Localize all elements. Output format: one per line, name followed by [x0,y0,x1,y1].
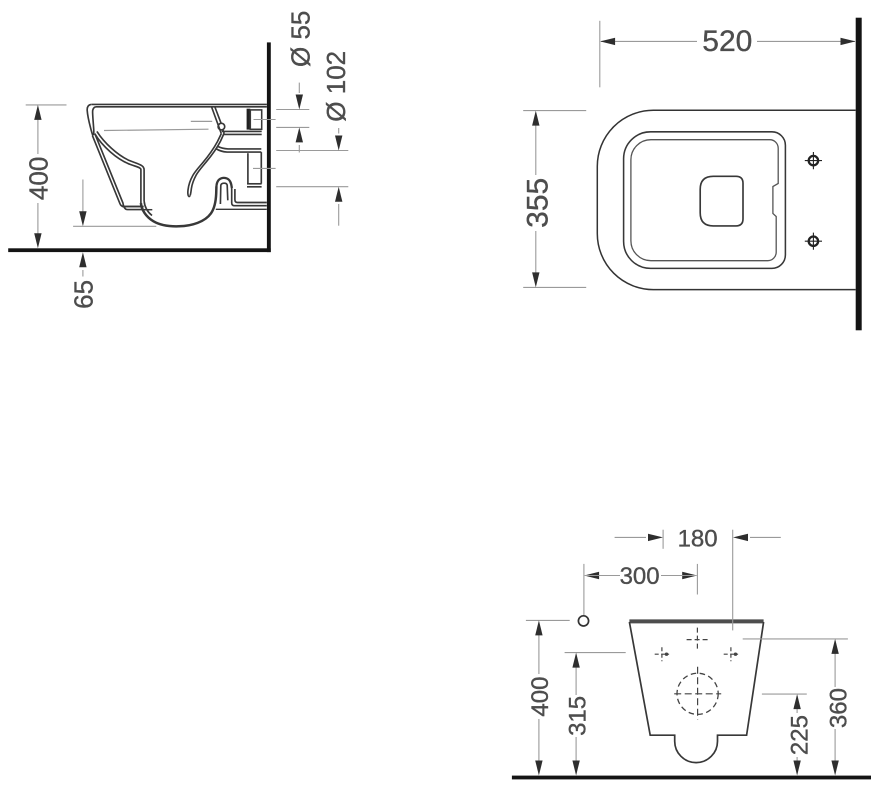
svg-text:Ø 55: Ø 55 [285,11,315,67]
svg-text:400: 400 [24,157,54,200]
svg-text:360: 360 [825,688,852,728]
svg-text:65: 65 [68,280,98,309]
svg-text:520: 520 [702,25,752,58]
svg-text:225: 225 [786,715,813,755]
svg-text:355: 355 [521,178,554,228]
svg-text:180: 180 [678,525,718,552]
svg-text:300: 300 [620,563,660,590]
svg-text:315: 315 [565,696,592,736]
svg-text:400: 400 [527,677,554,717]
svg-text:Ø 102: Ø 102 [321,51,351,122]
